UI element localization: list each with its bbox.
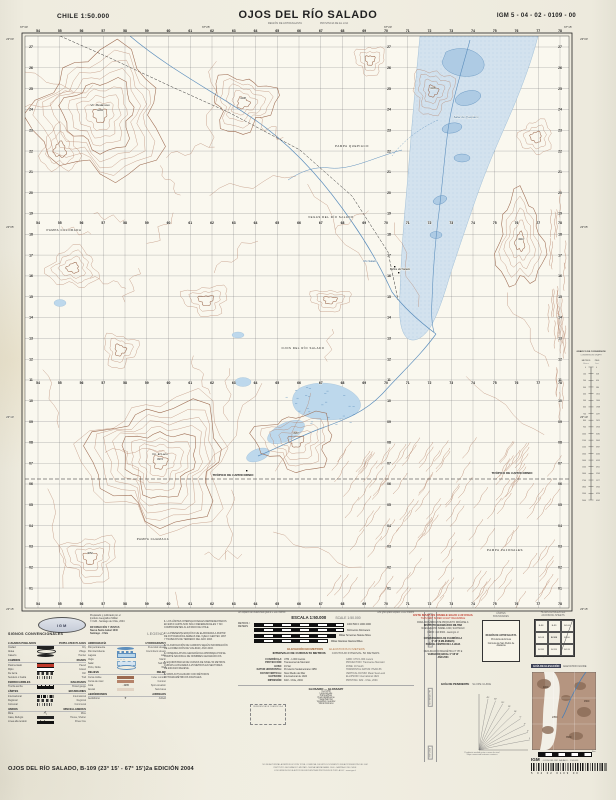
map-sheet: CHILE 1:50.000 OJOS DEL RÍO SALADO REGIÓ… <box>0 0 616 800</box>
svg-text:62: 62 <box>210 602 214 606</box>
svg-text:11: 11 <box>558 378 562 382</box>
slope-title-es: GUÍA DE PENDIENTE <box>441 682 469 686</box>
svg-text:62: 62 <box>210 29 214 33</box>
svg-text:69: 69 <box>362 602 366 606</box>
svg-text:72: 72 <box>428 381 432 385</box>
svg-text:69: 69 <box>362 381 366 385</box>
scale-title: ESCALA 1:50.000 SCALE 1:50.000 <box>238 615 414 620</box>
svg-text:1312: 1312 <box>596 393 600 395</box>
svg-text:73: 73 <box>449 221 453 225</box>
legend-label-en: Index contour <box>134 676 166 679</box>
svg-text:64: 64 <box>254 221 258 225</box>
svg-text:13: 13 <box>387 337 391 341</box>
svg-text:11: 11 <box>29 378 33 382</box>
svg-text:2625: 2625 <box>596 420 600 422</box>
svg-text:09: 09 <box>387 420 391 424</box>
svg-text:656: 656 <box>596 380 599 382</box>
svg-text:74: 74 <box>471 602 475 606</box>
legend-row: ArenalSand area <box>88 687 166 691</box>
legend-row: Mina⛏Mine <box>8 712 86 716</box>
legend-label-es: Comunal <box>8 703 37 706</box>
svg-text:68: 68 <box>341 602 345 606</box>
note-line: DE LA DIRECCIÓN DE VIALIDAD, AÑO 2003. <box>164 647 235 650</box>
legend-label-en: Regional <box>54 699 86 702</box>
legend-row: De tierraDirt <box>8 671 86 675</box>
legend-label-en: Trail <box>54 676 86 679</box>
svg-text:200: 200 <box>583 380 586 382</box>
svg-text:54: 54 <box>36 602 40 606</box>
legend-row: InternacionalInternational <box>8 694 86 698</box>
svg-text:4052: 4052 <box>87 551 93 555</box>
svg-text:1200: 1200 <box>582 447 586 449</box>
scale-bar <box>254 639 328 643</box>
copyright-lines: NO SE AUTORIZA LA REPRODUCCIÓN TOTAL O P… <box>210 764 420 773</box>
svg-text:62: 62 <box>210 381 214 385</box>
svg-text:5249: 5249 <box>596 473 600 475</box>
legend-label-es: Mina <box>8 712 37 715</box>
svg-text:Baños del Salado: Baños del Salado <box>390 267 411 271</box>
svg-text:58: 58 <box>123 381 127 385</box>
svg-text:26: 26 <box>558 66 562 70</box>
svg-text:09: 09 <box>29 420 33 424</box>
note-line: DE ESCASO RELIEVE. <box>164 667 235 670</box>
legend-row: CaseríoHamlet <box>8 654 86 658</box>
legend-label-es: Cota <box>88 684 117 687</box>
svg-text:5905: 5905 <box>596 487 600 489</box>
svg-text:CONVERSION GRAPH: CONVERSION GRAPH <box>580 354 602 357</box>
svg-text:06: 06 <box>387 482 391 486</box>
svg-text:08: 08 <box>29 441 33 445</box>
svg-text:PAMPA PAJONALES: PAMPA PAJONALES <box>487 548 523 552</box>
svg-text:67: 67 <box>319 221 323 225</box>
border-diagonal <box>534 619 573 655</box>
legend-symbol-line2 <box>117 676 134 679</box>
barcode-brand: IGM <box>531 757 540 762</box>
svg-text:600: 600 <box>583 407 586 409</box>
legend-symbol-sand <box>117 688 134 691</box>
svg-text:30°: 30° <box>494 699 497 701</box>
legend-label-en: Spot elevation <box>134 684 166 687</box>
svg-text:59: 59 <box>145 381 149 385</box>
declination-block: PARA ADQUIRIR ESTE PRODUCTO DIRÍJASE A:I… <box>413 622 473 660</box>
barcode-digits: 5 04 02 0109 00 <box>531 772 615 775</box>
legend-label-en: Communal <box>54 703 86 706</box>
svg-text:68: 68 <box>341 221 345 225</box>
svg-text:4105: 4105 <box>430 86 436 90</box>
svg-text:45°: 45° <box>487 697 490 699</box>
svg-text:4138: 4138 <box>240 96 246 100</box>
svg-text:3281: 3281 <box>596 433 600 435</box>
elev-guide-en: ELEVATION GUIDE <box>561 664 588 668</box>
legend-section-en: ROADS <box>77 659 86 662</box>
svg-text:GRÁFICO DE CONVERSIÓN: GRÁFICO DE CONVERSIÓN <box>576 350 605 353</box>
legend-symbol-dots <box>37 676 54 679</box>
legend-symbol-dash <box>37 672 54 675</box>
svg-text:05: 05 <box>29 503 33 507</box>
red-light-notice: ESTE MAPA ES VISIBLE BAJO LUZ ROJA THIS … <box>413 613 473 660</box>
svg-text:63: 63 <box>232 221 236 225</box>
svg-text:76: 76 <box>515 221 519 225</box>
edition-strip-label: SISTEMA UTM <box>428 688 433 707</box>
legend-label-en: Salt flat <box>136 662 166 665</box>
svg-text:18: 18 <box>387 232 391 236</box>
glossary: GLOSARIO — GLOSSARY CerroHillLagunaLakeP… <box>238 685 414 705</box>
legend-row: Curva de nivelContour <box>88 679 166 683</box>
svg-text:06: 06 <box>29 482 33 486</box>
admin-unit: REGIÓN DE ANTOFAGASTA <box>483 635 519 637</box>
svg-text:55: 55 <box>58 221 62 225</box>
svg-text:65: 65 <box>275 221 279 225</box>
legend-row: Trocha anchaBroad gauge <box>8 685 86 689</box>
grid-note-es: Un espacio de cuadrícula igual a 1.000 m… <box>238 612 285 614</box>
slope-note: Slope measured between contours <box>436 754 528 756</box>
svg-text:55: 55 <box>58 381 62 385</box>
svg-text:77: 77 <box>536 221 540 225</box>
svg-text:67: 67 <box>319 29 323 33</box>
svg-text:19: 19 <box>29 212 33 216</box>
svg-text:67°15': 67°15' <box>564 25 572 29</box>
legend-section-es: LUGARES POBLADOS <box>8 642 36 645</box>
svg-text:23: 23 <box>387 128 391 132</box>
datum-table: REFERENCIA DE CUADRÍCULA CUADRÍCULA:UTM … <box>238 658 414 682</box>
svg-text:4310: 4310 <box>518 237 524 241</box>
svg-text:PIES: PIES <box>595 360 600 362</box>
legend-symbol-blue <box>117 647 134 650</box>
svg-text:04: 04 <box>387 524 391 528</box>
svg-text:56: 56 <box>80 29 84 33</box>
svg-text:57: 57 <box>101 602 105 606</box>
svg-text:73: 73 <box>449 29 453 33</box>
svg-text:61: 61 <box>188 221 192 225</box>
svg-text:55: 55 <box>58 29 62 33</box>
legend-row: Línea alta tensiónPower line <box>8 720 86 724</box>
svg-text:03: 03 <box>387 545 391 549</box>
meters-ticks: 1000 500 0 1000 2000 <box>347 623 371 626</box>
limits-title-en: BOUNDARIES <box>482 615 520 618</box>
note-paragraph: 2. LA PRESENTE EDICIÓN FUE ELABORADA A P… <box>164 632 235 641</box>
barcode-stripes <box>531 763 607 771</box>
svg-text:900: 900 <box>583 427 586 429</box>
svg-text:2000: 2000 <box>582 500 586 502</box>
svg-text:1640: 1640 <box>596 400 600 402</box>
svg-text:74: 74 <box>471 381 475 385</box>
svg-text:22: 22 <box>387 149 391 153</box>
elevation-guide-scalebar-label: Km <box>592 751 595 753</box>
svg-text:23°05': 23°05' <box>580 225 588 229</box>
svg-text:60: 60 <box>167 29 171 33</box>
legend-label-en: Hamlet <box>54 654 86 657</box>
legend-label-es: Arenal <box>88 688 117 691</box>
svg-text:Río Salado: Río Salado <box>363 259 377 263</box>
svg-text:69: 69 <box>362 221 366 225</box>
datum-row: IMPRESIÓN:IGM - Chile, 2004PRINTING: IGM… <box>238 679 414 682</box>
svg-text:56: 56 <box>80 221 84 225</box>
svg-text:65: 65 <box>275 381 279 385</box>
svg-text:5577: 5577 <box>596 480 600 482</box>
svg-text:66: 66 <box>297 381 301 385</box>
svg-text:01: 01 <box>387 586 391 590</box>
svg-text:11: 11 <box>387 378 391 382</box>
svg-text:04: 04 <box>29 524 33 528</box>
svg-text:19: 19 <box>558 212 562 216</box>
svg-text:68: 68 <box>341 29 345 33</box>
elev-es: ELEVACIÓN EN METROS <box>287 647 323 651</box>
legend-title: SIGNOS CONVENCIONALES LEGEND <box>8 632 164 636</box>
note-line: COMPROMETEN AL ESTADO DE CHILE. <box>164 626 235 629</box>
svg-text:12: 12 <box>387 357 391 361</box>
meters-label: METROS / METERS <box>238 622 254 628</box>
barcode-code: - OJOS DEL RÍO SALADO - 1:50.000 <box>542 760 579 762</box>
slope-title-en: SLOPE GUIDE <box>472 682 491 686</box>
svg-text:10: 10 <box>29 399 33 403</box>
svg-text:56: 56 <box>80 381 84 385</box>
svg-text:26: 26 <box>29 66 33 70</box>
svg-text:02: 02 <box>29 565 33 569</box>
legend-label-es: Regional <box>8 699 37 702</box>
svg-text:54: 54 <box>36 29 40 33</box>
note-paragraph: 5. EQUIDISTANCIA DE CURVAS DE NIVEL 50 M… <box>164 661 235 670</box>
legend-label-es: Trocha ancha <box>8 685 37 688</box>
legend-row: Sendero o huellaTrail <box>8 675 86 679</box>
svg-text:1900: 1900 <box>582 493 586 495</box>
svg-text:58: 58 <box>123 221 127 225</box>
svg-text:67: 67 <box>319 381 323 385</box>
svg-text:23°00': 23°00' <box>6 37 14 41</box>
legend-label-en: Village <box>56 650 86 653</box>
svg-text:08: 08 <box>558 441 562 445</box>
svg-text:1000: 1000 <box>582 433 586 435</box>
legend-label-es: Ripio <box>8 668 37 671</box>
marginal-notes: 1. LOS LÍMITES INTERNACIONALES REPRESENT… <box>164 620 235 681</box>
legend-label-en: Mine <box>54 712 86 715</box>
svg-text:0: 0 <box>596 367 597 369</box>
svg-text:23: 23 <box>558 128 562 132</box>
svg-text:64: 64 <box>254 602 258 606</box>
svg-text:500: 500 <box>583 400 586 402</box>
legend-section-es: CAMINOS <box>8 659 20 662</box>
svg-text:4265: 4265 <box>596 453 600 455</box>
svg-text:1800: 1800 <box>582 487 586 489</box>
svg-text:3937: 3937 <box>596 447 600 449</box>
copyright-line: LOS DERECHOS DE AUTOR SE ENCUENTRAN PROT… <box>210 770 420 773</box>
svg-text:15°: 15° <box>508 706 511 708</box>
note-paragraph: 3. CLASIFICACIÓN DE CAMINOS SEGÚN INFORM… <box>164 644 235 650</box>
svg-text:67°30': 67°30' <box>20 25 28 29</box>
note-line: COMITÉ NACIONAL DE NOMBRES GEOGRÁFICOS. <box>164 655 235 658</box>
svg-text:75: 75 <box>493 221 497 225</box>
datum-label-en: PRINTING: IGM - Chile, 2004 <box>346 679 414 682</box>
svg-text:25: 25 <box>29 87 33 91</box>
svg-text:07: 07 <box>387 461 391 465</box>
legend-symbol-dash <box>37 699 54 702</box>
svg-text:27: 27 <box>29 45 33 49</box>
svg-text:63: 63 <box>232 602 236 606</box>
svg-text:15: 15 <box>558 295 562 299</box>
scale-bar-label: Millas Terrestres Statute Miles <box>339 634 371 637</box>
svg-text:20: 20 <box>558 191 562 195</box>
grid-reference-box: REFERENCIA DE CUADRÍCULA <box>250 704 286 725</box>
legend-symbol-dots <box>37 703 54 706</box>
scale-bar-label: Kilómetros Kilometers <box>347 629 370 632</box>
legend-label-es: Curva de nivel <box>88 680 117 683</box>
svg-text:66: 66 <box>297 29 301 33</box>
svg-text:74: 74 <box>471 221 475 225</box>
svg-text:700: 700 <box>583 413 586 415</box>
svg-text:23°05': 23°05' <box>6 225 14 229</box>
elev-en: ELEVATIONS IN METERS <box>329 647 365 651</box>
legend-label-es: Salar <box>88 662 117 665</box>
svg-text:73: 73 <box>449 381 453 385</box>
legend-row: ComunalCommunal <box>8 702 86 706</box>
svg-text:23: 23 <box>29 128 33 132</box>
svg-text:70: 70 <box>384 29 388 33</box>
glossary-es: Volcán <box>318 703 325 705</box>
svg-text:60: 60 <box>167 381 171 385</box>
legend-label-es: Vega <box>88 658 117 661</box>
interval-es: INTERVALO DE CURVAS 50 METROS <box>273 651 326 655</box>
svg-text:4000: 4000 <box>543 686 549 689</box>
scale-bars: METROS / METERS1000 500 0 1000 2000Kilóm… <box>238 622 414 644</box>
legend-column-left: LUGARES POBLADOSPOPULATED PLACESCiudadCi… <box>8 640 86 724</box>
scale-bar <box>254 634 336 638</box>
grid-note-en: One grid space equals 1.000 meters <box>377 612 414 614</box>
svg-text:OJOS DEL RÍO SALADO: OJOS DEL RÍO SALADO <box>281 346 324 350</box>
svg-text:2953: 2953 <box>596 427 600 429</box>
svg-text:0: 0 <box>585 367 586 369</box>
svg-text:PAMPA QUEPIACO: PAMPA QUEPIACO <box>335 144 369 148</box>
svg-text:6234: 6234 <box>596 493 600 495</box>
svg-text:08: 08 <box>387 441 391 445</box>
svg-text:24: 24 <box>387 108 391 112</box>
svg-text:67°25': 67°25' <box>202 25 210 29</box>
elev-guide-es: GUÍA DE ELEVACIÓN <box>531 664 561 668</box>
boundaries-box: LÍMITESBOUNDARIES REGIÓN DE ANTOFAGASTAP… <box>482 612 520 662</box>
legend-label-es: Aeródromo <box>88 697 117 700</box>
legend-symbol-spot: · 4265 <box>117 684 134 687</box>
svg-text:75: 75 <box>493 29 497 33</box>
svg-text:25: 25 <box>558 87 562 91</box>
legend-section-es: HIDROGRAFÍA <box>88 642 106 645</box>
legend-label-en: Broad gauge <box>54 685 86 688</box>
svg-text:77: 77 <box>536 602 540 606</box>
svg-text:58: 58 <box>123 29 127 33</box>
legend-row: RegionalRegional <box>8 698 86 702</box>
svg-text:21: 21 <box>29 170 33 174</box>
svg-text:13: 13 <box>29 337 33 341</box>
svg-text:1600: 1600 <box>582 473 586 475</box>
svg-text:27: 27 <box>558 45 562 49</box>
legend-label-en: Contour <box>134 680 166 683</box>
svg-text:63: 63 <box>232 29 236 33</box>
svg-text:4921: 4921 <box>596 467 600 469</box>
svg-text:2350: 2350 <box>552 716 558 719</box>
svg-text:73: 73 <box>449 602 453 606</box>
svg-text:14: 14 <box>29 316 33 320</box>
legend-title-es: SIGNOS CONVENCIONALES <box>8 632 63 636</box>
legend-section-es: VARIOS <box>8 708 18 711</box>
igm-logo: IGM <box>38 617 86 633</box>
svg-text:02: 02 <box>387 565 391 569</box>
svg-text:20: 20 <box>387 191 391 195</box>
svg-text:76: 76 <box>515 602 519 606</box>
svg-text:02: 02 <box>558 565 562 569</box>
svg-text:63: 63 <box>232 381 236 385</box>
svg-text:06: 06 <box>558 482 562 486</box>
svg-text:24: 24 <box>29 108 33 112</box>
scale-bar-row: Millas Náuticas Nautical Miles <box>238 639 414 645</box>
legend-section-en: HYDROGRAPHY <box>146 642 166 645</box>
svg-text:METROS: METROS <box>582 360 591 362</box>
legend-label-es: Aldea <box>8 650 37 653</box>
sheet-name-footer: OJOS DEL RÍO SALADO, B-109 (23° 15' - 67… <box>8 766 194 772</box>
svg-text:19: 19 <box>387 212 391 216</box>
svg-text:10°: 10° <box>514 711 517 713</box>
svg-text:55: 55 <box>58 602 62 606</box>
svg-text:58: 58 <box>123 602 127 606</box>
svg-text:TRÓPICO DE CAPRICORNIO: TRÓPICO DE CAPRICORNIO <box>213 472 255 477</box>
svg-text:64: 64 <box>254 381 258 385</box>
legend-label-en: City <box>54 646 86 649</box>
legend-symbol-intl <box>37 695 54 698</box>
credits-block: Preparado y publicado por elInstituto Ge… <box>90 614 164 623</box>
legend-section-en: RAILROADS <box>71 681 86 684</box>
elevation-units: ELEVACIÓN EN METROSELEVATIONS IN METERS <box>238 647 414 651</box>
svg-text:328: 328 <box>596 373 599 375</box>
svg-text:54: 54 <box>36 381 40 385</box>
svg-text:23°10': 23°10' <box>6 415 14 419</box>
svg-text:71: 71 <box>406 602 410 606</box>
legend-row: Aeródromo✈Airfield <box>88 697 166 701</box>
svg-text:61: 61 <box>188 29 192 33</box>
svg-text:6562: 6562 <box>596 500 600 502</box>
svg-text:03: 03 <box>558 545 562 549</box>
credit-line: © IGM - Santiago de Chile, 2004 <box>90 620 164 623</box>
svg-text:57: 57 <box>101 381 105 385</box>
legend-label-en: International <box>54 695 86 698</box>
adjoining-title-en: ADJOINING SHEETS <box>531 614 575 617</box>
svg-text:12: 12 <box>558 357 562 361</box>
svg-text:65: 65 <box>275 29 279 33</box>
svg-text:18: 18 <box>558 232 562 236</box>
adjoining-sheets: HOJAS ADYACENTESADJOINING SHEETS B-98B-9… <box>531 611 575 658</box>
legend-section-en: BOUNDARIES <box>69 690 86 693</box>
svg-text:17: 17 <box>29 253 33 257</box>
svg-text:69: 69 <box>362 29 366 33</box>
note-paragraph: 4. NOMENCLATURA GEOGRÁFICA APROBADA POR … <box>164 652 235 658</box>
grid-note: Un espacio de cuadrícula igual a 1.000 m… <box>238 612 414 614</box>
legend-label-es: Pozo, Noria <box>88 666 117 669</box>
slope-guide-diagram: 45°30°20°15°10°5°3°2°1° <box>476 688 530 752</box>
svg-text:PAMPA COLORADA: PAMPA COLORADA <box>47 228 82 232</box>
svg-text:77: 77 <box>536 381 540 385</box>
svg-text:Salar de Quepiaco: Salar de Quepiaco <box>454 115 479 119</box>
svg-text:4593: 4593 <box>596 460 600 462</box>
svg-text:72: 72 <box>428 221 432 225</box>
svg-text:Feet: Feet <box>595 362 599 365</box>
legend-symbol-power <box>37 721 54 724</box>
svg-text:16: 16 <box>558 274 562 278</box>
note-paragraph: 1. LOS LÍMITES INTERNACIONALES REPRESENT… <box>164 620 235 629</box>
elevation-guide-title: GUÍA DE ELEVACIÓN ELEVATION GUIDE <box>531 664 615 668</box>
svg-text:10: 10 <box>558 399 562 403</box>
svg-text:23°15': 23°15' <box>580 607 588 611</box>
svg-text:1300: 1300 <box>582 453 586 455</box>
svg-text:71: 71 <box>406 29 410 33</box>
svg-text:59: 59 <box>145 29 149 33</box>
legend-section-es: RELIEVE <box>88 671 99 674</box>
svg-text:21: 21 <box>558 170 562 174</box>
svg-text:1700: 1700 <box>582 480 586 482</box>
